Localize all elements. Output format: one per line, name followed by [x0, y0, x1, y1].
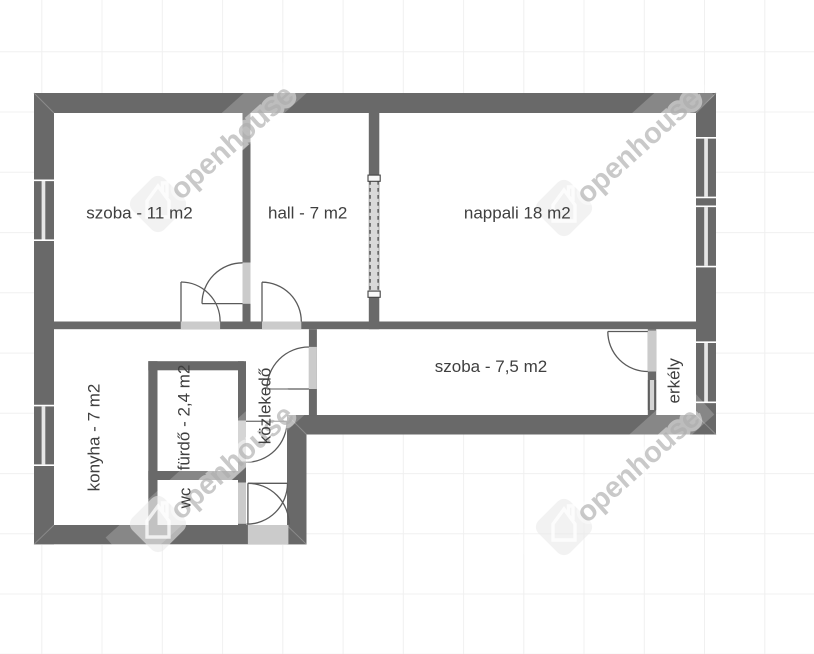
svg-text:nappali 18 m2: nappali 18 m2	[464, 204, 571, 223]
svg-text:fürdő - 2,4 m2: fürdő - 2,4 m2	[175, 365, 194, 471]
svg-text:szoba - 11 m2: szoba - 11 m2	[86, 204, 192, 223]
svg-text:wc: wc	[176, 487, 195, 509]
svg-text:közlekedő: közlekedő	[255, 368, 274, 445]
svg-text:erkély: erkély	[665, 358, 684, 404]
svg-text:szoba - 7,5 m2: szoba - 7,5 m2	[435, 357, 547, 376]
svg-text:konyha - 7 m2: konyha - 7 m2	[85, 384, 104, 492]
svg-text:hall - 7 m2: hall - 7 m2	[268, 204, 347, 223]
